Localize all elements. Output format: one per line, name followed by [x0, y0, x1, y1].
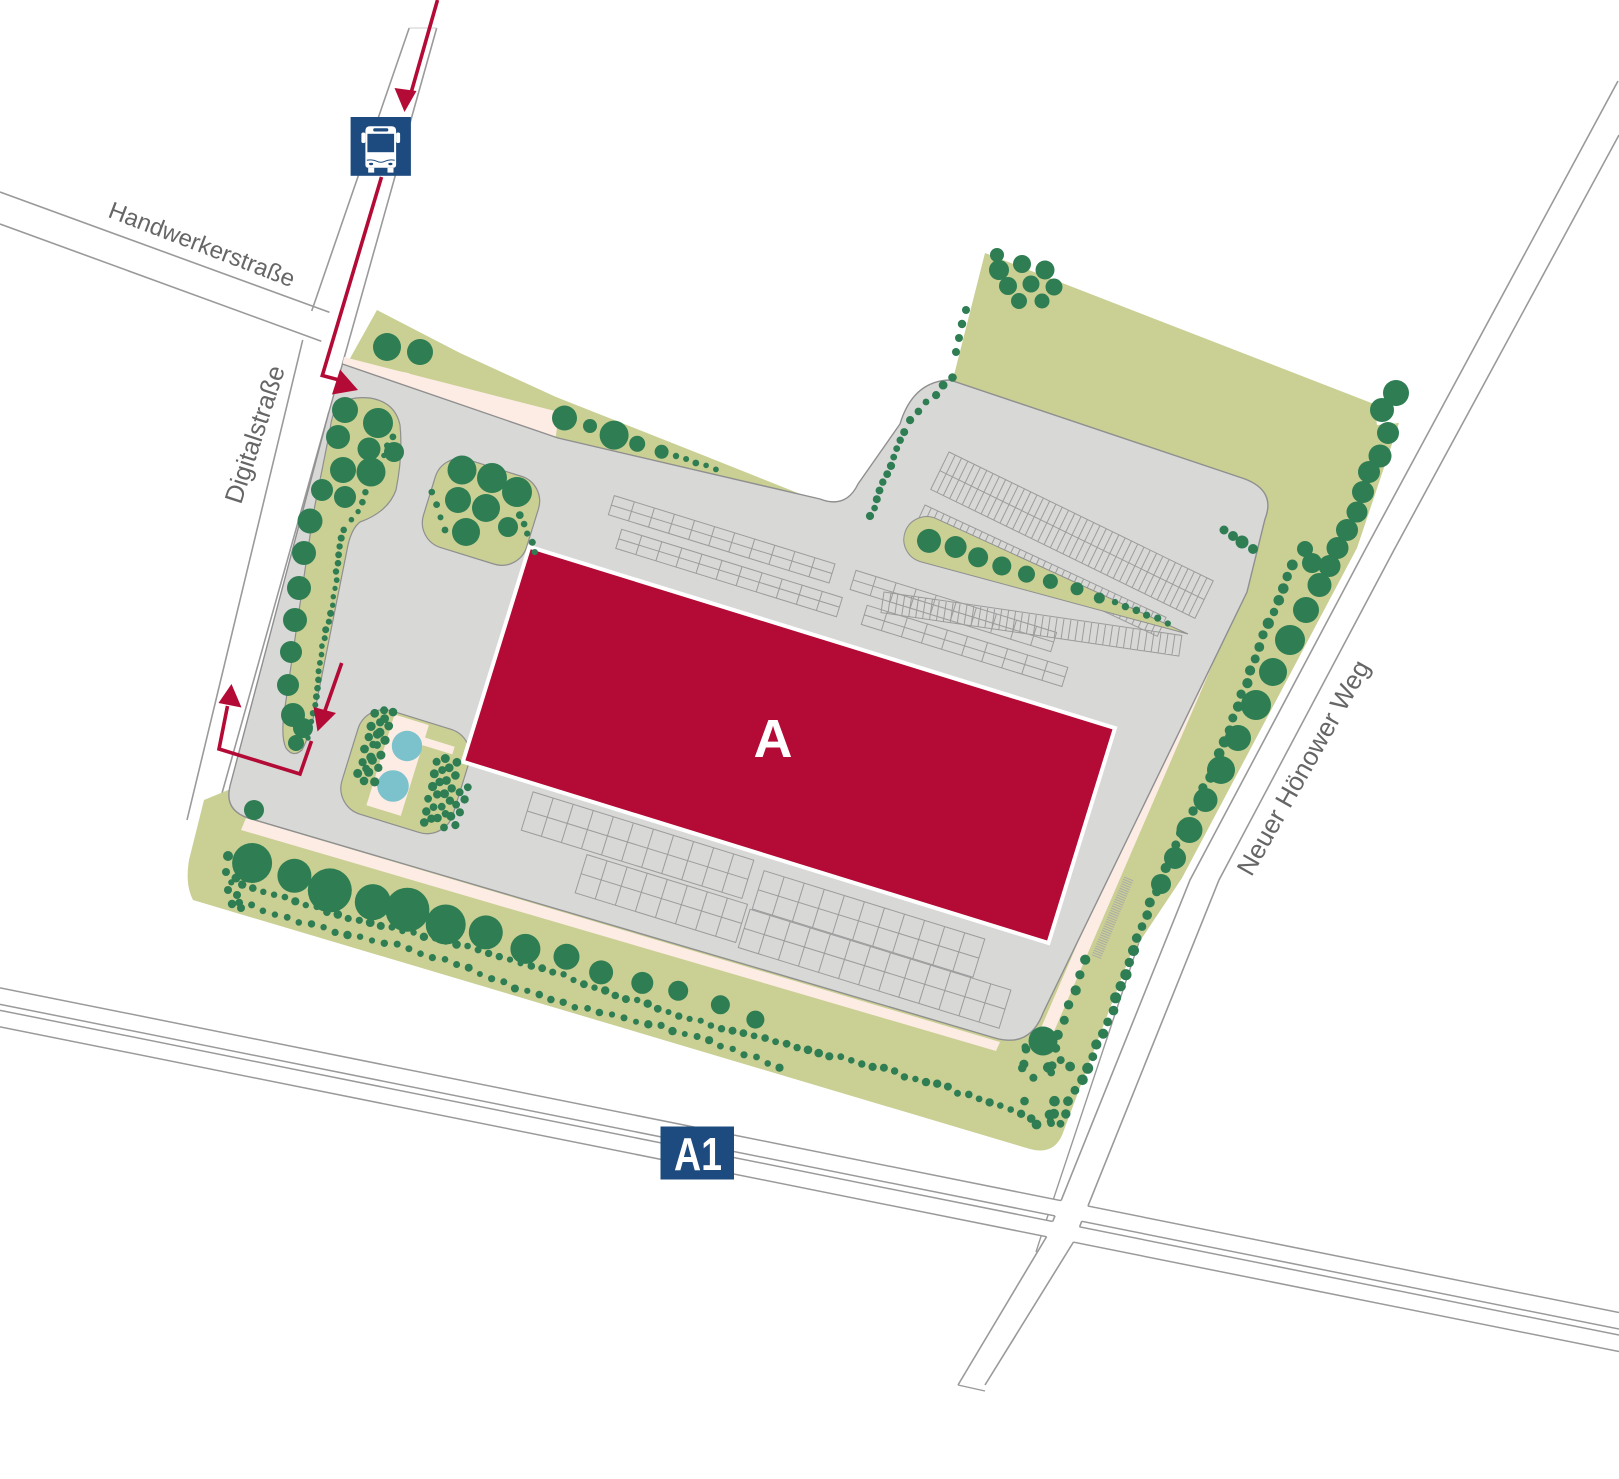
svg-text:A: A: [754, 709, 793, 769]
svg-text:A1: A1: [674, 1128, 722, 1180]
